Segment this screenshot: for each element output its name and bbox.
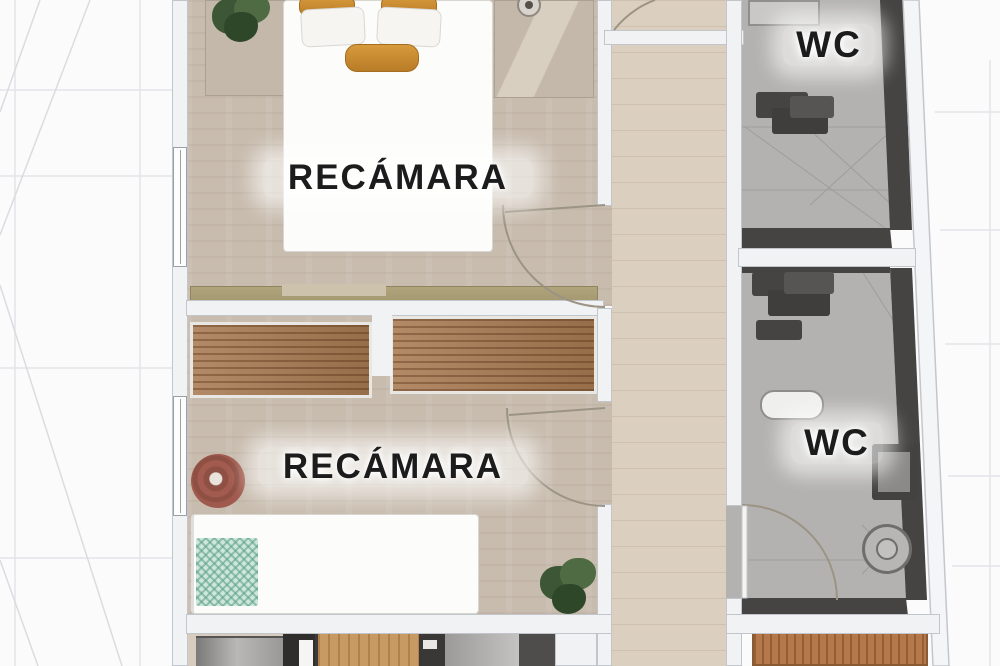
room-label-wc2: WC xyxy=(791,422,883,464)
door-leaf xyxy=(505,205,605,212)
room-label-bedroom1: RECÁMARA xyxy=(263,158,533,198)
door-leaf xyxy=(742,506,747,598)
room-label-bedroom2: RECÁMARA xyxy=(258,447,528,487)
door-swing-layer xyxy=(0,0,1000,666)
room-label-wc1: WC xyxy=(783,24,875,66)
door-leaf xyxy=(509,408,605,415)
door-arc xyxy=(503,205,605,307)
door-arc xyxy=(614,0,655,30)
floor-plan: RECÁMARA RECÁMARA WC WC xyxy=(0,0,1000,666)
door-arc xyxy=(742,505,837,600)
